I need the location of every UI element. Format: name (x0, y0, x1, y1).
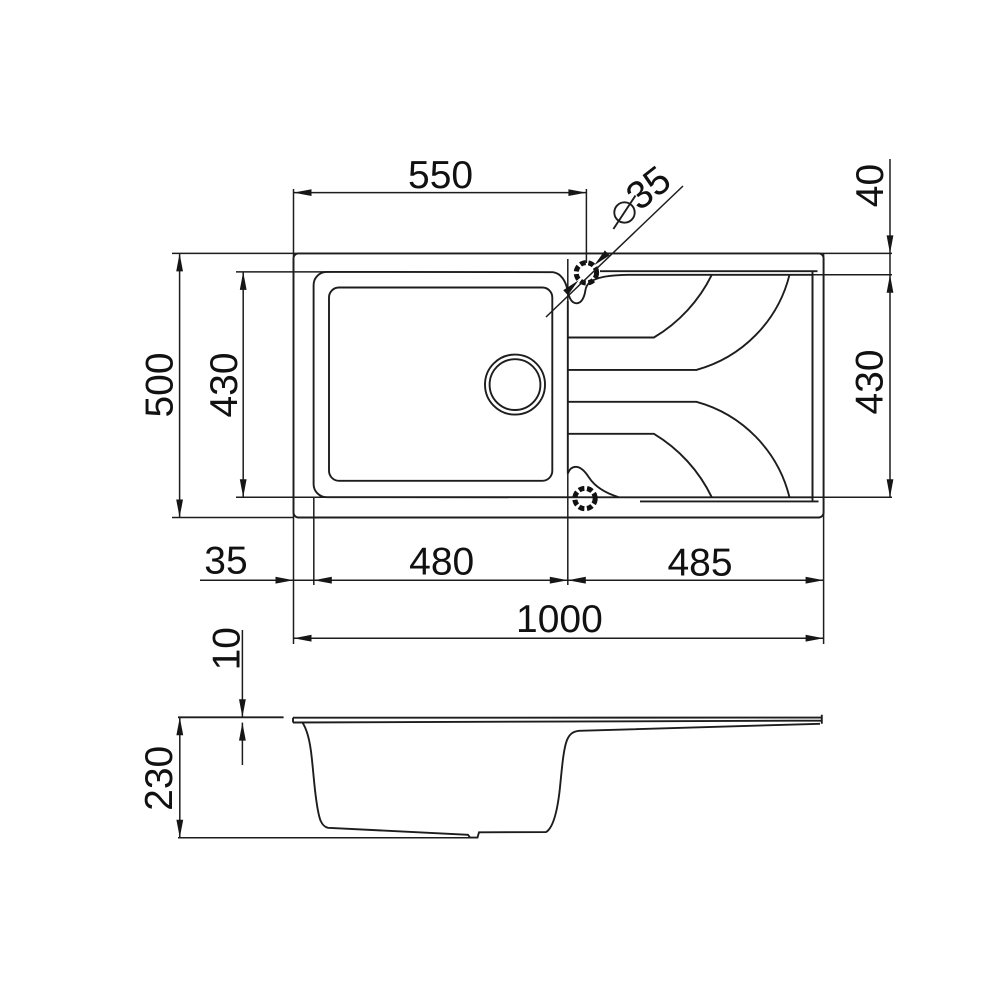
svg-text:40: 40 (849, 164, 892, 207)
svg-text:10: 10 (206, 627, 249, 670)
svg-text:500: 500 (138, 352, 181, 417)
svg-text:1000: 1000 (516, 598, 603, 641)
svg-text:230: 230 (138, 746, 181, 811)
svg-text:35: 35 (204, 540, 247, 583)
svg-text:485: 485 (667, 542, 732, 585)
svg-text:430: 430 (849, 349, 892, 414)
svg-text:550: 550 (408, 154, 473, 197)
svg-text:430: 430 (203, 352, 246, 417)
svg-text:35: 35 (618, 158, 679, 219)
svg-text:480: 480 (409, 541, 474, 584)
